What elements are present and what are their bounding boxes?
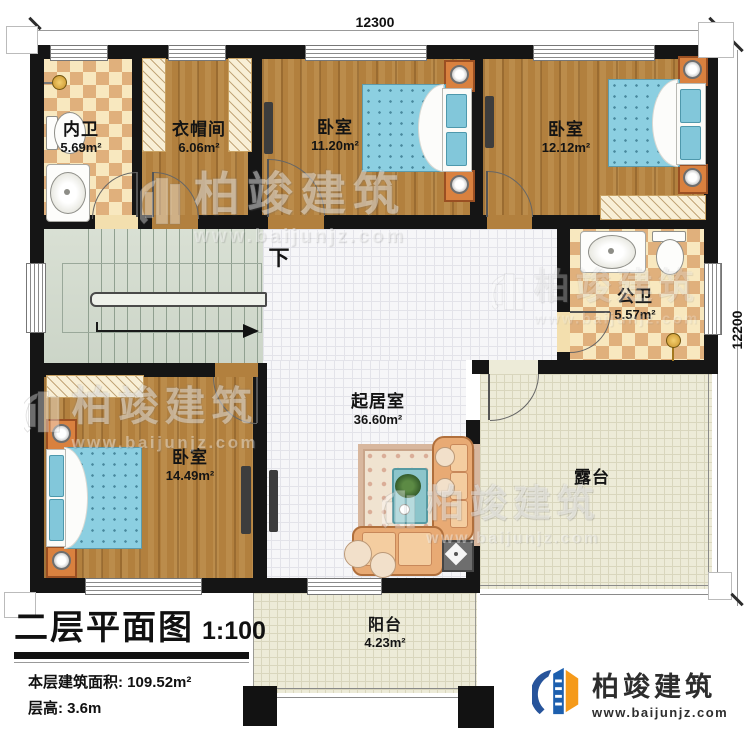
room-name: 起居室: [328, 392, 428, 412]
company-name: 柏竣建筑: [592, 665, 728, 704]
floor-plan-canvas: 内卫 5.69m² 衣帽间 6.06m² 卧室 11.20m² 卧室 12.12…: [0, 0, 750, 739]
lamp-icon: [450, 175, 469, 194]
pillow: [446, 94, 467, 128]
room-area: 14.49m²: [148, 468, 232, 484]
tv-icon-living-room: [269, 470, 278, 532]
dimension-line-top: [35, 30, 716, 31]
room-label-living: 起居室 36.60m²: [328, 392, 428, 428]
room-label-balcony: 阳台 4.23m²: [348, 616, 422, 651]
lamp-icon: [683, 60, 702, 79]
company-website: www.baijunjz.com: [592, 705, 728, 720]
company-logo: 柏竣建筑 www.baijunjz.com: [532, 664, 728, 720]
stair-direction-arrow-icon: [243, 324, 259, 338]
axis-marker: [698, 22, 734, 58]
lamp-icon: [52, 551, 71, 570]
room-label-bedroom-top-right: 卧室 12.12m²: [526, 120, 606, 156]
pillow: [680, 89, 701, 123]
window-bedroom-top-right: [533, 45, 655, 61]
room-area: 5.57m²: [600, 307, 670, 323]
room-label-gongwei: 公卫 5.57m²: [600, 287, 670, 323]
sofa-cushion: [398, 532, 432, 566]
door-gap-gongwei: [557, 312, 570, 352]
lamp-icon: [683, 168, 702, 187]
door-gap-terrace: [489, 360, 538, 374]
tv-icon-bedroom-top-left: [264, 102, 273, 154]
company-logo-icon: [532, 664, 584, 720]
table-cup-icon: [399, 504, 410, 515]
corner-table-dot: [454, 552, 458, 556]
window-neiwei: [50, 45, 108, 61]
room-name: 卧室: [148, 448, 232, 468]
room-name: 衣帽间: [156, 120, 242, 140]
sofa-cushion: [450, 500, 468, 528]
wardrobe-bedroom-lower: [46, 375, 144, 398]
door-gap-bedroom-top-left: [268, 215, 324, 229]
pillow: [49, 499, 64, 541]
room-label-yimaojian: 衣帽间 6.06m²: [156, 120, 242, 156]
room-label-neiwei: 内卫 5.69m²: [43, 120, 119, 156]
room-area: 4.23m²: [348, 635, 422, 651]
ottoman-icon: [344, 540, 372, 568]
sofa-pillow: [435, 447, 455, 467]
window-living-balcony: [307, 578, 382, 595]
ottoman-icon: [370, 552, 396, 578]
lamp-icon: [52, 424, 71, 443]
room-area: 36.60m²: [328, 412, 428, 428]
balcony-post-right: [458, 686, 494, 728]
sink-drain-gongwei: [608, 248, 614, 254]
window-stairwell: [26, 263, 46, 333]
floor-area-text: 本层建筑面积: 109.52m²: [14, 671, 314, 692]
door-gap-bedroom-top-right: [487, 215, 532, 229]
room-label-bedroom-lower: 卧室 14.49m²: [148, 448, 232, 484]
tv-icon-bedroom-top-right: [485, 96, 494, 148]
dimension-depth-label: 12200: [729, 299, 745, 361]
room-name: 卧室: [526, 120, 606, 140]
title-underline-bar: [14, 652, 249, 659]
window-bedroom-lower: [85, 578, 202, 595]
sink-drain-neiwei: [64, 189, 70, 195]
stair-direction-line-start: [96, 322, 98, 332]
axis-marker: [6, 26, 38, 54]
room-label-terrace: 露台: [562, 468, 622, 488]
sofa-pillow: [435, 478, 455, 498]
pillow: [446, 132, 467, 166]
title-block: 二层平面图 1:100 本层建筑面积: 109.52m² 层高: 3.6m: [14, 600, 314, 718]
wall-gongwei-left-upper: [557, 229, 570, 312]
lamp-icon: [450, 65, 469, 84]
pillow: [680, 126, 701, 160]
room-name: 露台: [562, 468, 622, 488]
terrace-corner-marker: [708, 572, 732, 600]
window-bedroom-top-left: [305, 45, 427, 61]
door-gap-bedroom-lower: [215, 363, 258, 377]
plan-title: 二层平面图: [14, 600, 194, 649]
plant-icon: [395, 474, 421, 498]
terrace-railing-right: [708, 374, 718, 588]
title-underline-thin: [14, 662, 249, 663]
room-name: 阳台: [348, 616, 422, 635]
room-area: 12.12m²: [526, 140, 606, 156]
room-name: 卧室: [295, 118, 375, 138]
shower-valve-icon: [52, 75, 67, 90]
room-area: 11.20m²: [295, 138, 375, 154]
dimension-width-label: 12300: [340, 14, 410, 30]
room-name: 内卫: [43, 120, 119, 140]
balcony-edge-right: [475, 593, 478, 691]
floor-hallway: [263, 229, 557, 360]
room-label-bedroom-top-left: 卧室 11.20m²: [295, 118, 375, 154]
stair-direction-label: 下: [266, 246, 292, 271]
pillow: [49, 455, 64, 497]
toilet-icon-gongwei: [656, 239, 684, 275]
terrace-railing-bottom: [480, 585, 716, 595]
stair-railing: [90, 292, 267, 307]
stair-direction-line: [97, 330, 245, 332]
tv-icon-bedroom-lower: [241, 466, 251, 534]
plan-scale: 1:100: [202, 617, 266, 646]
wardrobe-bedroom-top-right: [600, 195, 706, 220]
window-gongwei: [704, 263, 722, 335]
room-area: 6.06m²: [156, 140, 242, 156]
floor-drain-icon: [666, 333, 681, 348]
room-name: 公卫: [600, 287, 670, 307]
room-area: 5.69m²: [43, 140, 119, 156]
window-cloakroom: [168, 45, 226, 61]
floor-height-text: 层高: 3.6m: [14, 697, 314, 718]
